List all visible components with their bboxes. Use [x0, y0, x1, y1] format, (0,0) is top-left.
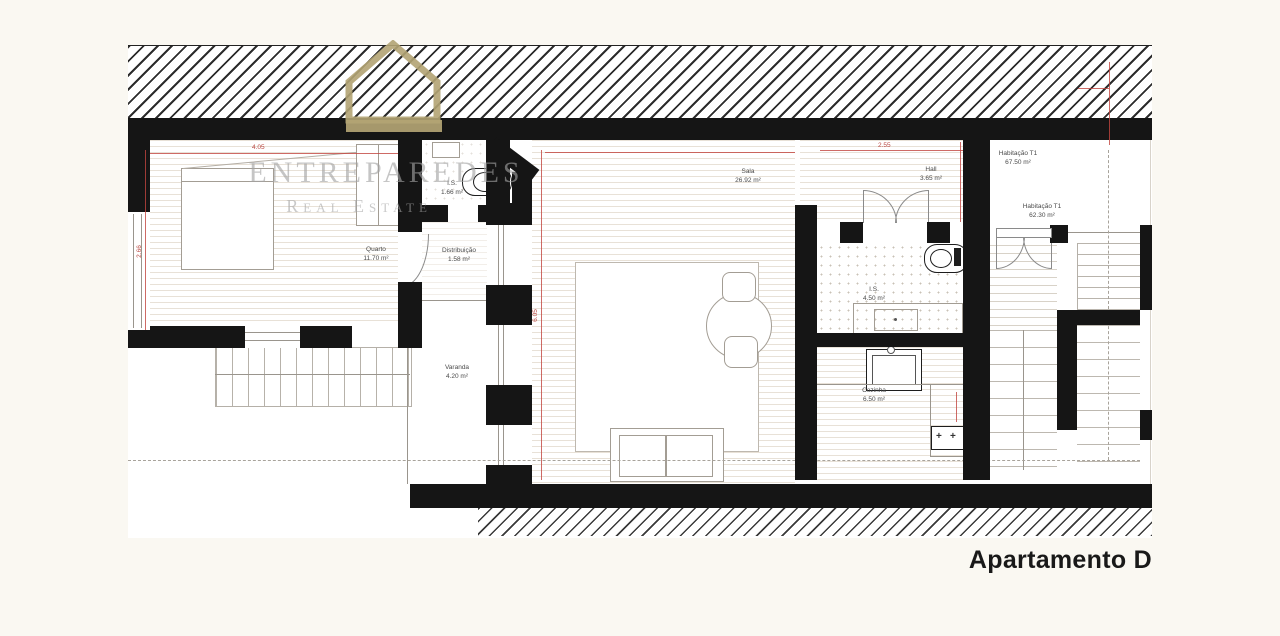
window-left [128, 212, 150, 330]
bottom-hatch-band [478, 508, 1152, 536]
dim-label-quarto-height: 2.66 [136, 245, 143, 258]
room-label-quarto: Quarto 11.70 m² [363, 246, 388, 264]
window-quarto-south [245, 326, 300, 348]
room-area: 67.50 m² [999, 159, 1038, 168]
wall-hall-south-b [927, 222, 950, 243]
stove-burner-icon: + [936, 432, 942, 442]
window-left-pane-2 [141, 214, 142, 328]
sofa-cushion-2 [665, 435, 713, 477]
room-name: I.S. [863, 286, 885, 295]
room-name: Cozinha [862, 387, 886, 396]
varanda-north-line [422, 300, 487, 301]
window-quarto-south-pane-1 [245, 332, 300, 333]
window-left-pane-1 [133, 214, 134, 328]
wall-stair-mid-vertical [1057, 310, 1077, 430]
room-name: Distribuição [442, 247, 476, 256]
wall-left-upper [128, 140, 150, 212]
room-label-distribuicao: Distribuição 1.58 m² [442, 247, 476, 265]
wall-stair-west [963, 140, 990, 480]
dim-line-hall-height [960, 142, 961, 222]
room-label-habitacao-b: Habitação T1 62.30 m² [1023, 203, 1062, 221]
dim-line-kitchen [956, 392, 957, 422]
counter-edge-line [817, 384, 930, 385]
house-outline-icon [344, 40, 442, 124]
plan-cut-line [1150, 140, 1151, 508]
vanity-drain-dot [894, 318, 897, 321]
sofa [610, 428, 724, 482]
wall-right-upper [1140, 225, 1152, 310]
entry-door-frame [996, 228, 1052, 238]
room-area: 62.30 m² [1023, 212, 1062, 221]
dim-label-quarto-width: 4.05 [252, 144, 265, 151]
room-name: Habitação T1 [1023, 203, 1062, 212]
dim-line-sala-width [545, 152, 795, 153]
room-label-sala: Sala 26.92 m² [735, 168, 761, 186]
varanda-glazing-1 [498, 225, 499, 475]
room-area: 3.65 m² [920, 175, 942, 184]
wall-block [398, 282, 422, 348]
dim-label-sala-height: 6.05 [532, 309, 539, 322]
room-name: Hall [920, 166, 942, 175]
room-area: 4.20 m² [445, 373, 469, 382]
exterior-steps-midline [215, 374, 410, 375]
page-title: Apartamento D [969, 546, 1152, 575]
room-label-is2: I.S. 4.50 m² [863, 286, 885, 304]
void-edge-line [1068, 232, 1140, 233]
wall-quarto-south-b [300, 326, 352, 348]
room-area: 1.58 m² [442, 256, 476, 265]
stair-stringer-line [1023, 330, 1024, 470]
wall-hall-south-a [840, 222, 863, 243]
window-quarto-south-pane-2 [245, 340, 300, 341]
pillar-1 [486, 285, 532, 325]
floor-plan-canvas: + + 4.05 2.66 6.05 2.55 Quarto 11.70 m² … [0, 0, 1280, 636]
sofa-cushion-1 [619, 435, 667, 477]
varanda-glazing-2 [503, 225, 504, 475]
toilet-2-tank [954, 248, 961, 266]
varanda-west-line [407, 348, 408, 484]
room-name: Habitação T1 [999, 150, 1038, 159]
chair-bottom [724, 336, 758, 368]
logo-underline-bar [346, 120, 442, 132]
room-area: 11.70 m² [363, 255, 388, 264]
wall-divider-block [486, 203, 532, 225]
room-name: Varanda [445, 364, 469, 373]
room-area: 6.50 m² [862, 396, 886, 405]
toilet-2 [924, 244, 968, 273]
room-label-varanda: Varanda 4.20 m² [445, 364, 469, 382]
room-area: 4.50 m² [863, 295, 885, 304]
pillar-2 [486, 385, 532, 425]
room-label-habitacao-a: Habitação T1 67.50 m² [999, 150, 1038, 168]
vanity-counter [853, 303, 963, 335]
room-area: 1.66 m² [441, 189, 463, 198]
faucet-icon [887, 346, 895, 354]
stair-flight-upper [1077, 243, 1141, 310]
room-name: Sala [735, 168, 761, 177]
dim-mark-topright-h [1078, 88, 1109, 89]
wall-bottom [410, 484, 1152, 508]
dim-label-hall-width: 2.55 [878, 142, 891, 149]
room-area: 26.92 m² [735, 177, 761, 186]
exterior-steps [215, 347, 412, 407]
watermark-brand: ENTREPAREDES [246, 156, 526, 190]
wall-entry-door-jamb [1050, 225, 1068, 243]
kitchen-sink-basin [872, 355, 916, 385]
wall-bath-south [817, 333, 963, 347]
dim-line-sala-height [541, 150, 542, 480]
room-name: Quarto [363, 246, 388, 255]
stair-dash-line [1108, 150, 1109, 460]
dim-line-quarto-width [150, 153, 398, 154]
room-label-hall: Hall 3.65 m² [920, 166, 942, 184]
chair-top [722, 272, 756, 302]
toilet-2-bowl [930, 249, 952, 268]
wall-sala-east [795, 205, 817, 480]
stove-burner-icon: + [950, 432, 956, 442]
dim-line-hall-width [820, 150, 963, 151]
dim-line-quarto-height [145, 150, 146, 330]
wall-right-lower [1140, 410, 1152, 440]
watermark-tagline: Real Estate [246, 196, 432, 217]
wall-top [128, 118, 1152, 140]
dim-mark-topright-v [1109, 62, 1110, 145]
top-hatch-band [128, 45, 1152, 119]
room-label-cozinha: Cozinha 6.50 m² [862, 387, 886, 405]
